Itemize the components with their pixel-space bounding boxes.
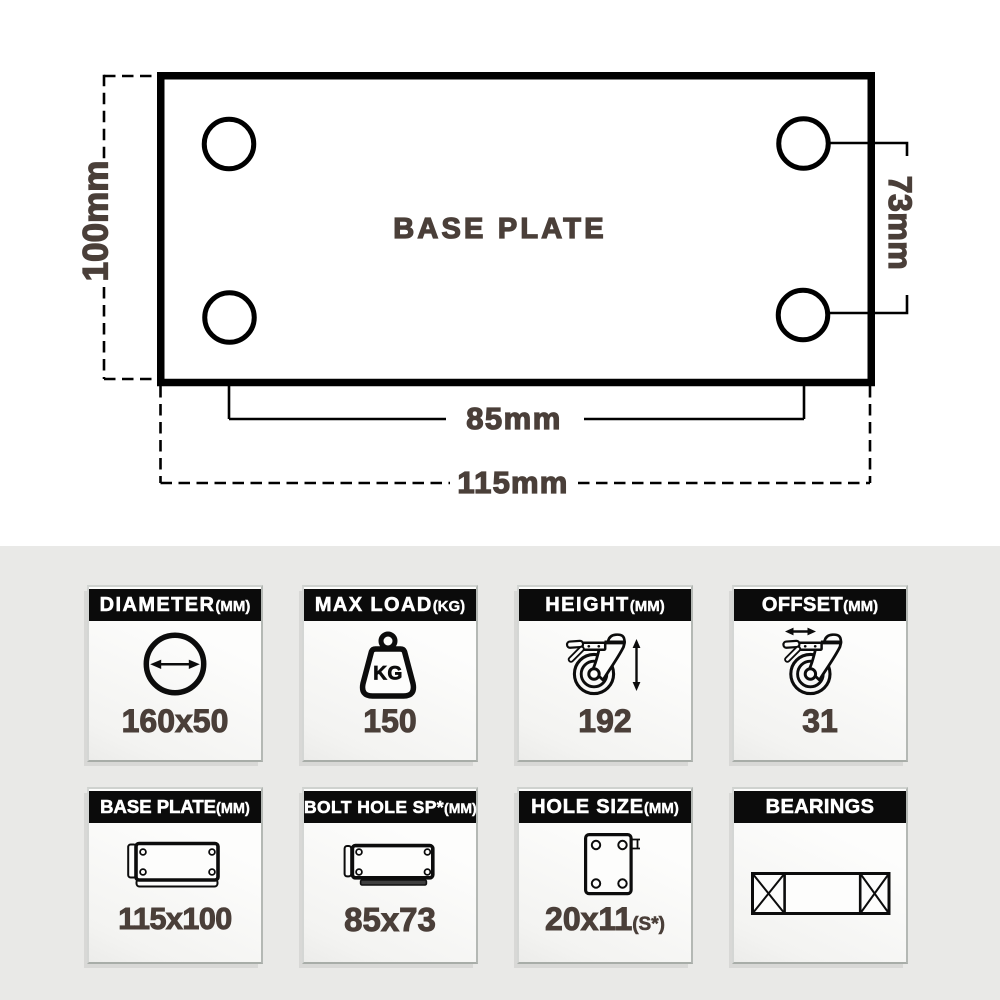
svg-text:115mm: 115mm [457, 465, 568, 500]
svg-text:85mm: 85mm [466, 401, 562, 436]
svg-text:KG: KG [373, 664, 403, 685]
svg-text:73mm: 73mm [882, 176, 918, 271]
svg-text:100mm: 100mm [77, 161, 116, 282]
svg-text:BASE PLATE: BASE PLATE [393, 213, 607, 245]
